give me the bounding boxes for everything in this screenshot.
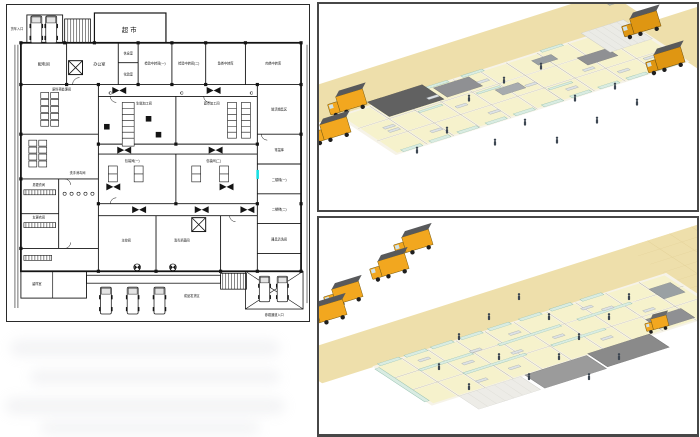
room-label-inspection-1: 检验中转间(一) bbox=[144, 61, 165, 66]
truck-icon bbox=[99, 287, 113, 314]
iso-building-bottom bbox=[319, 218, 697, 434]
room-label-power-room: 配电间 bbox=[38, 62, 50, 67]
room-label-supermarket: 超市 bbox=[122, 25, 139, 34]
room-label-raw-pretreatment: 原料预处理间 bbox=[52, 86, 71, 91]
watermark-smudge bbox=[0, 326, 316, 437]
truck-icon bbox=[153, 287, 167, 314]
room-label-men-changing: 男更衣间 bbox=[32, 182, 45, 187]
room-label-dispatch-area: 成品发货区 bbox=[184, 293, 200, 298]
room-label-women-changing: 女更衣间 bbox=[32, 215, 45, 220]
room-label-inspection-2: 检验中转间(二) bbox=[178, 61, 199, 66]
room-label-fresh-sales: 鲜活销售区 bbox=[271, 106, 287, 111]
room-label-packing-1: 包装间(一) bbox=[125, 158, 140, 163]
truck-icon bbox=[30, 16, 44, 43]
room-label-sterilize-room: 消毒杀菌间 bbox=[174, 237, 190, 242]
iso-render-bottom bbox=[319, 218, 697, 434]
room-label-fresh-processing: 生鲜加工间 bbox=[136, 100, 152, 105]
room-label-pastry-processing: 面点加工间 bbox=[204, 100, 220, 105]
grid-mark-c3: C bbox=[250, 90, 254, 96]
room-label-ambient-store: 常温库 bbox=[274, 147, 283, 152]
screenshot-stage: 超市 货车入口 配电间 办公室 休息室 化验室 检验中转间(一) 检验中转间(二… bbox=[0, 0, 700, 437]
car-icon bbox=[258, 276, 271, 301]
iso-render-top bbox=[319, 4, 697, 210]
grid-mark-c1: C bbox=[109, 90, 113, 96]
truck-icon bbox=[44, 16, 58, 43]
room-label-stair-2: 二楼梯(二) bbox=[272, 207, 287, 212]
outer-walls bbox=[21, 13, 303, 309]
room-label-packing-2: 包装间(二) bbox=[206, 158, 221, 163]
grid-mark-c2: C bbox=[180, 90, 184, 96]
room-label-control-room: 主控间 bbox=[121, 237, 130, 242]
room-label-visitor-entrance: 参观通道入口 bbox=[265, 312, 284, 317]
truck-icon bbox=[126, 287, 140, 314]
room-label-office: 办公室 bbox=[93, 62, 105, 67]
room-label-fish-transfer: 鱼类中转库 bbox=[218, 61, 234, 66]
room-label-truck-entrance: 货车入口 bbox=[11, 26, 24, 31]
room-label-meat-transfer: 肉类中转库 bbox=[265, 61, 281, 66]
floor-plan-drawing: 超市 货车入口 配电间 办公室 休息室 化验室 检验中转间(一) 检验中转间(二… bbox=[7, 5, 309, 321]
room-label-utensil-wash: 器具清洗间 bbox=[271, 236, 287, 241]
door-arcs bbox=[65, 78, 268, 249]
column-markers bbox=[19, 41, 302, 273]
room-label-lab: 化验室 bbox=[123, 72, 132, 77]
floor-plan-sheet: 超市 货车入口 配电间 办公室 休息室 化验室 检验中转间(一) 检验中转间(二… bbox=[6, 4, 310, 322]
equipment-tables bbox=[24, 92, 251, 260]
room-label-rest-room: 休息室 bbox=[123, 51, 132, 56]
room-label-stair-1: 二楼梯(一) bbox=[272, 177, 287, 182]
render-panel-bottom bbox=[317, 216, 699, 437]
door-symbols bbox=[69, 61, 255, 271]
interior-walls bbox=[21, 43, 301, 271]
highlight-mark bbox=[256, 170, 259, 179]
car-icon bbox=[276, 276, 289, 301]
room-label-hand-wash: 洗手消毒间 bbox=[70, 170, 86, 175]
render-panel-top bbox=[317, 2, 699, 212]
room-label-sample-room: 留样室 bbox=[32, 281, 41, 286]
